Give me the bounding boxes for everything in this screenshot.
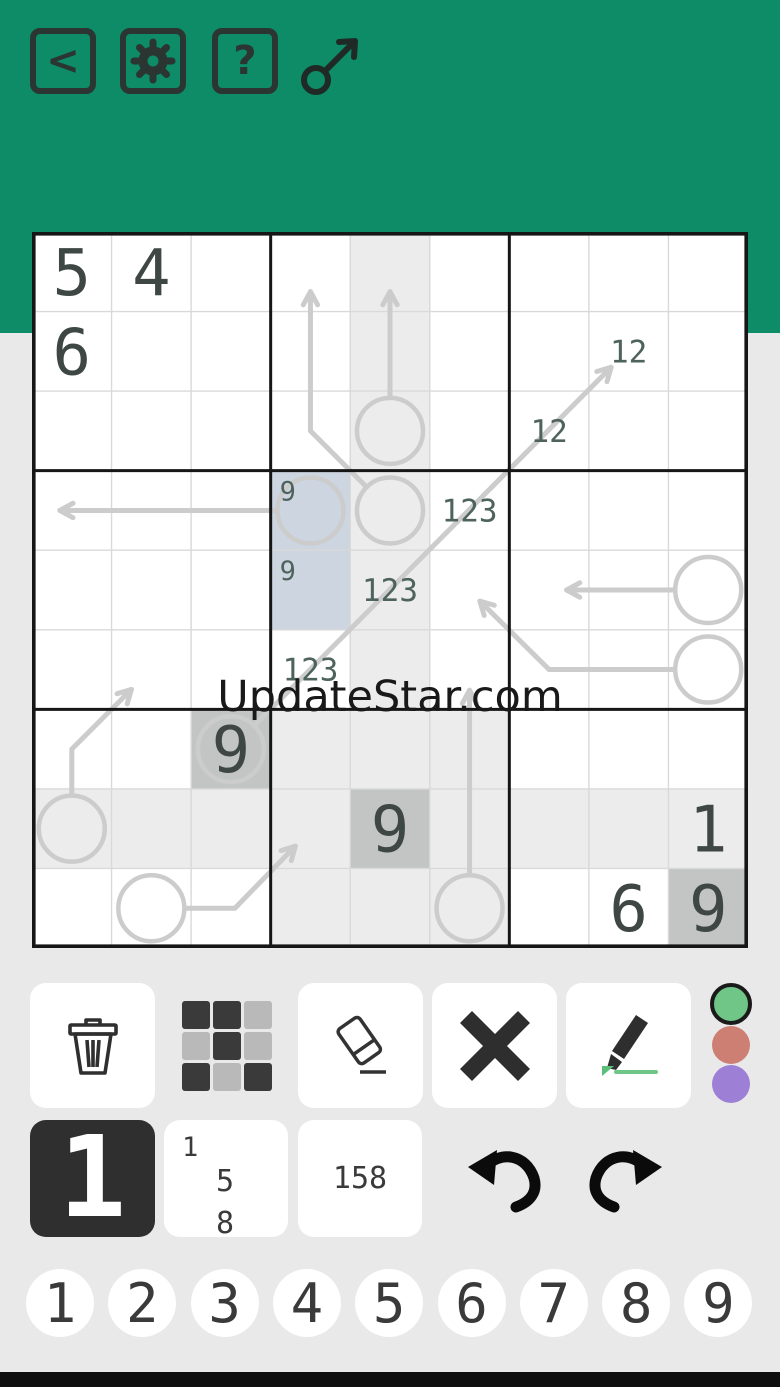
grid-icon-cell <box>182 1032 210 1060</box>
undo-button[interactable] <box>464 1144 552 1216</box>
mode-corner-button[interactable]: 1 5 8 <box>164 1120 288 1237</box>
grid-icon-cell <box>213 1001 241 1029</box>
given-digit: 5 <box>53 237 92 311</box>
given-digit: 9 <box>371 794 410 868</box>
x-icon <box>453 1004 537 1088</box>
color-dot-purple[interactable] <box>712 1065 750 1103</box>
grid-icon-cell <box>244 1063 272 1091</box>
watermark: UpdateStar.com <box>217 672 562 722</box>
given-digit: 9 <box>212 714 251 788</box>
digit-button-4[interactable]: 4 <box>273 1269 341 1337</box>
mode-normal-button[interactable]: 1 <box>30 1120 155 1237</box>
grid-icon-cell <box>244 1032 272 1060</box>
given-digit: 6 <box>53 316 92 390</box>
color-grid-button[interactable] <box>164 983 289 1108</box>
grid-icon-cell <box>182 1001 210 1029</box>
digit-button-1[interactable]: 1 <box>26 1269 94 1337</box>
help-button[interactable]: ? <box>212 28 278 94</box>
shaded-cell[interactable] <box>112 789 192 869</box>
redo-button[interactable] <box>578 1144 666 1216</box>
delete-button[interactable] <box>30 983 155 1108</box>
digit-button-2[interactable]: 2 <box>108 1269 176 1337</box>
given-digit: 4 <box>132 237 171 311</box>
trash-icon <box>58 1011 128 1081</box>
question-icon: ? <box>233 38 256 84</box>
corner-pencil-mark: 9 <box>280 556 296 587</box>
mode-center-label: 158 <box>333 1161 387 1196</box>
shaded-cell[interactable] <box>430 868 510 948</box>
shaded-cell[interactable] <box>271 868 351 948</box>
shaded-cell[interactable] <box>350 391 430 471</box>
given-digit: 9 <box>689 873 728 947</box>
eraser-icon <box>326 1011 396 1081</box>
digit-button-9[interactable]: 9 <box>684 1269 752 1337</box>
shaded-cell[interactable] <box>589 789 669 869</box>
corner-mark-8: 8 <box>216 1206 234 1241</box>
given-digit: 6 <box>609 873 648 947</box>
digit-button-8[interactable]: 8 <box>602 1269 670 1337</box>
center-pencil-mark: 123 <box>362 573 418 609</box>
color-dot-red[interactable] <box>712 1026 750 1064</box>
mode-center-button[interactable]: 158 <box>298 1120 422 1237</box>
grid-icon-cell <box>213 1032 241 1060</box>
sudoku-board[interactable]: 54699169121212312312399 <box>32 232 748 948</box>
center-pencil-mark: 12 <box>610 334 647 370</box>
center-pencil-mark: 12 <box>530 414 567 450</box>
mode-normal-label: 1 <box>59 1120 126 1237</box>
bottom-bar <box>0 1372 780 1387</box>
shaded-cell[interactable] <box>350 868 430 948</box>
cross-button[interactable] <box>432 983 557 1108</box>
shaded-cell[interactable] <box>32 789 112 869</box>
digit-button-5[interactable]: 5 <box>355 1269 423 1337</box>
grid-icon-cell <box>182 1063 210 1091</box>
marker-button[interactable] <box>566 983 691 1108</box>
color-dot-green[interactable] <box>710 983 752 1025</box>
corner-mark-5: 5 <box>216 1164 234 1199</box>
eraser-button[interactable] <box>298 983 423 1108</box>
gear-icon <box>129 37 177 85</box>
digit-button-7[interactable]: 7 <box>520 1269 588 1337</box>
back-button[interactable]: < <box>30 28 96 94</box>
digit-button-3[interactable]: 3 <box>191 1269 259 1337</box>
shaded-cell[interactable] <box>509 789 589 869</box>
grid-icon-cell <box>213 1063 241 1091</box>
grid-3x3-icon <box>182 1001 272 1091</box>
given-digit: 1 <box>689 794 728 868</box>
arrow-tool-icon[interactable] <box>296 28 368 100</box>
shaded-cell[interactable] <box>191 789 271 869</box>
marker-pen-icon <box>594 1011 664 1081</box>
back-icon: < <box>46 38 80 84</box>
digit-button-6[interactable]: 6 <box>438 1269 506 1337</box>
settings-button[interactable] <box>120 28 186 94</box>
corner-mark-1: 1 <box>182 1132 198 1163</box>
grid-icon-cell <box>244 1001 272 1029</box>
center-pencil-mark: 123 <box>442 493 498 529</box>
corner-pencil-mark: 9 <box>280 477 296 508</box>
